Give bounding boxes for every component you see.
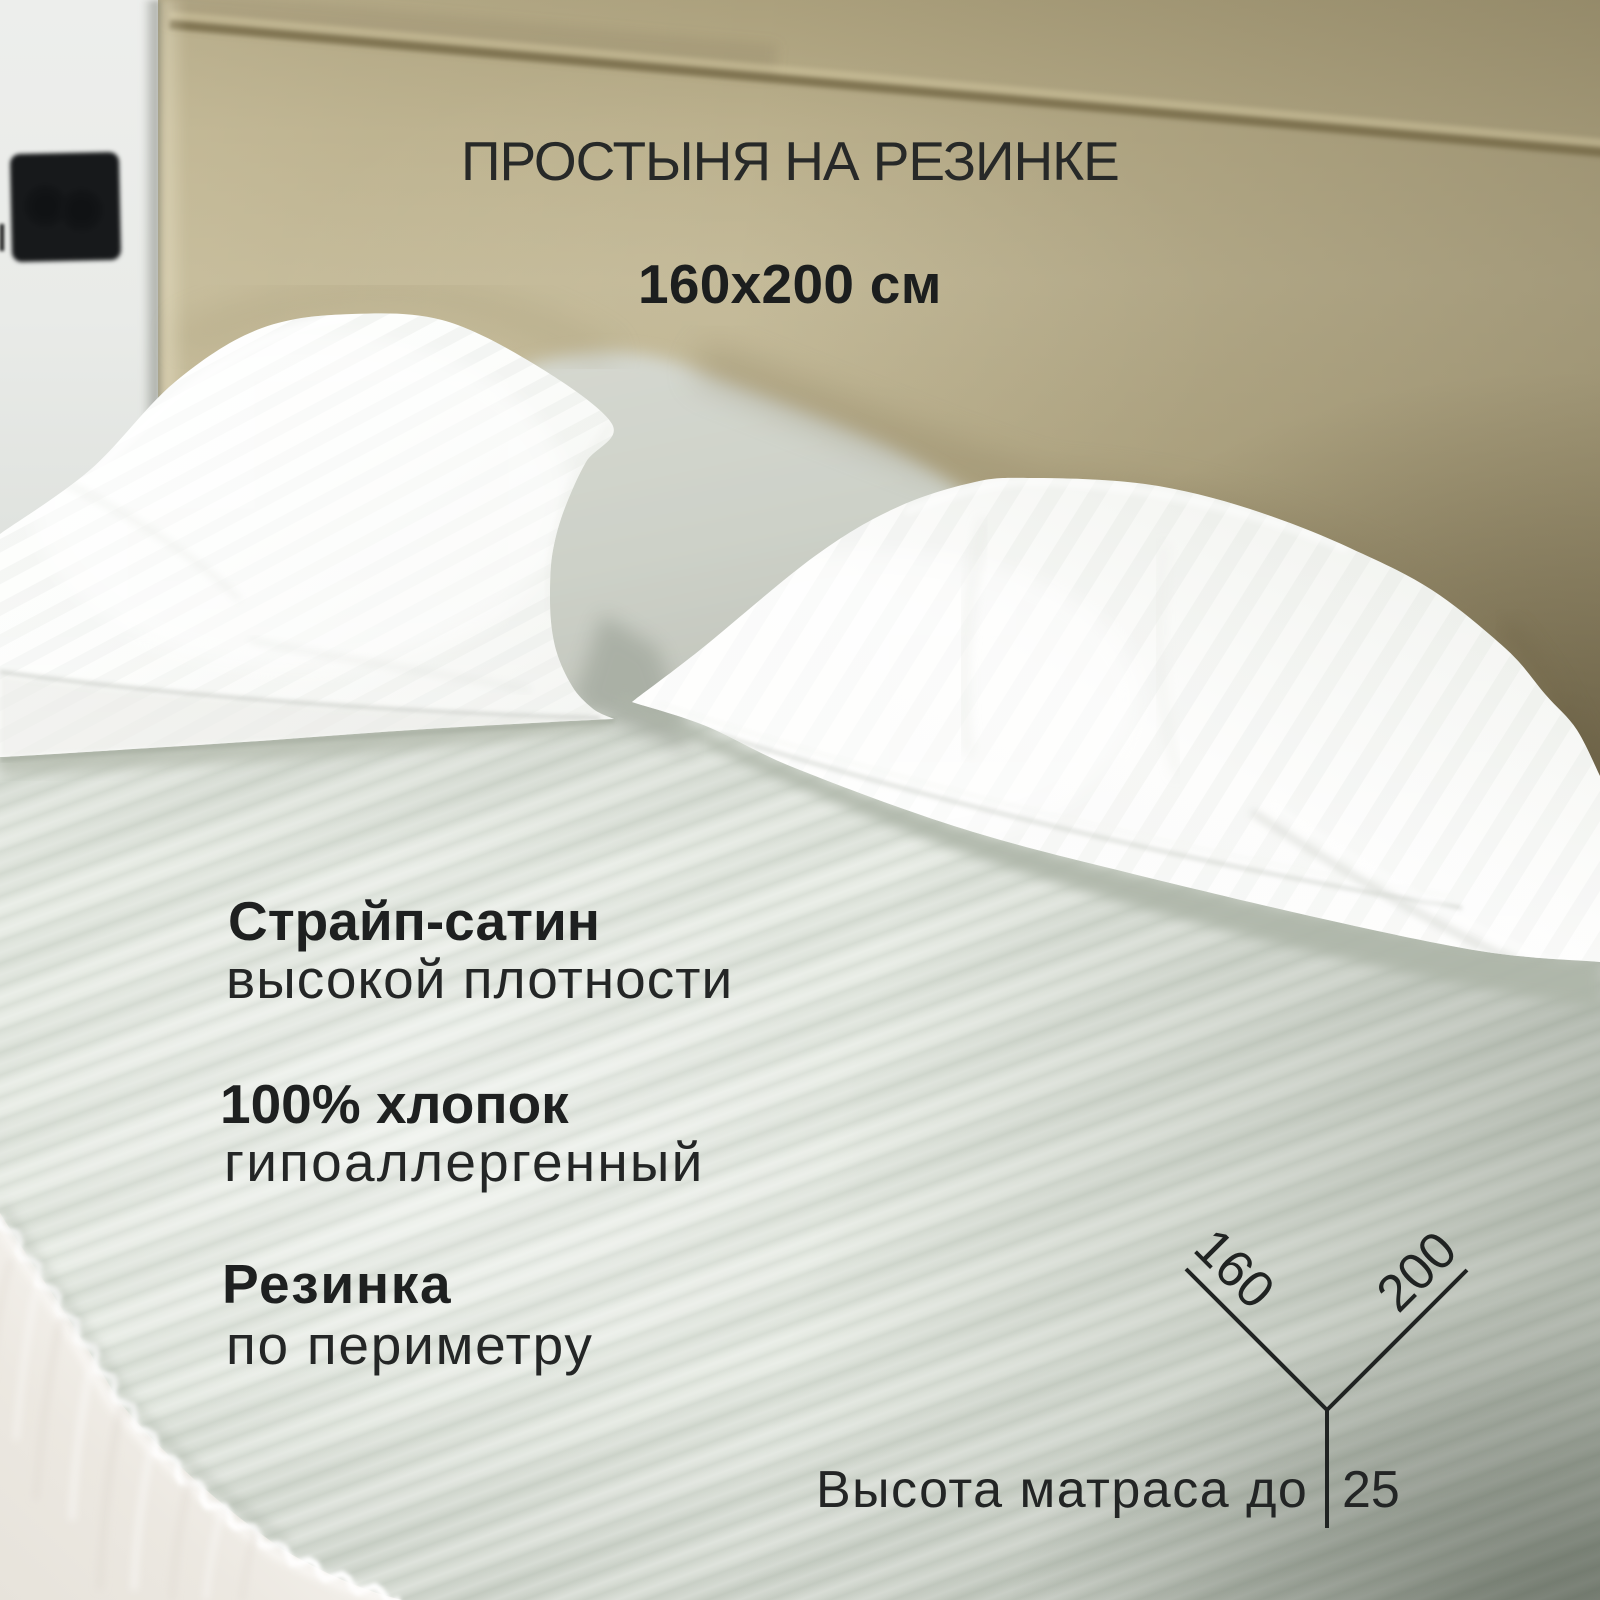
svg-text:160: 160 xyxy=(1183,1218,1285,1320)
svg-text:200: 200 xyxy=(1366,1221,1468,1323)
